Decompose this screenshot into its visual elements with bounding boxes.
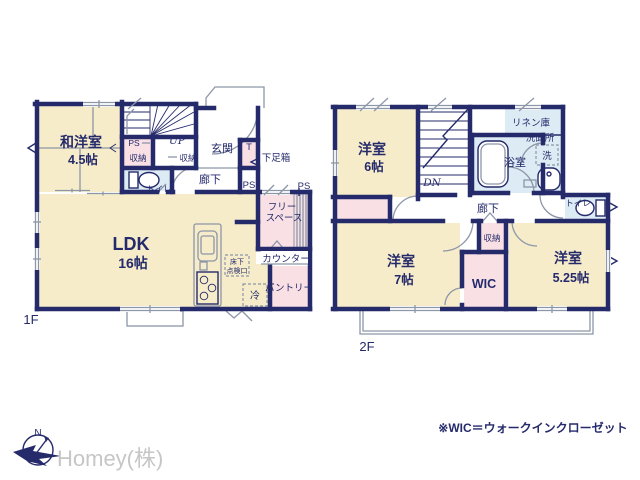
bedroom525-label: 洋室 [554,250,582,266]
floor-plan-page: 和洋室 4.5帖 PS 収納 収納 UP 玄関 T 下足箱 PS 廊下 トイレ … [0,0,640,480]
ldk-label: LDK [113,234,150,254]
closet-label-a: 収納 [129,153,146,163]
terrace-step [127,311,183,326]
bedroom7-size: 7帖 [394,272,414,287]
hallway-label-1f: 廊下 [199,172,221,186]
bedroom6-closet [335,199,388,219]
fridge-label: 冷 [250,289,260,302]
stairs-2f [420,108,470,184]
window [356,98,390,111]
stairs-up-arrow [127,109,134,134]
toilet2f-door-arc [540,195,563,218]
stairs-1f [122,104,194,136]
window [390,305,440,313]
t-label: T [246,142,252,153]
window [515,98,541,111]
company-logo-text: Homey(株) [57,446,163,471]
ps-label-b: PS [243,180,256,191]
compass-north-label: N [34,428,41,439]
ps-label-c: PS [298,181,311,192]
window [33,212,41,233]
washer-label: 洗 [542,150,552,162]
compass: N [13,428,61,466]
ldk-size: 16帖 [118,255,148,271]
linen-label: リネン庫 [512,117,551,129]
floor1-label: 1F [23,312,38,327]
closet-label-b: 収納 [179,153,196,163]
washitsu-size: 4.5帖 [68,152,98,167]
window [33,248,41,270]
bedroom6-label: 洋室 [358,141,386,157]
toilet-label-2f: トイレ [565,198,591,208]
wic-footnote: ※WIC＝ウォークインクローゼット [438,420,627,435]
counter-label: カウンター [262,254,310,265]
shoe-box-label: 下足箱 [262,152,291,164]
window [605,250,611,272]
compass-bird-icon [13,445,61,466]
bedroom7-label: 洋室 [387,253,415,269]
free-space-label-2: スペース [266,213,303,224]
floor2-label: 2F [359,339,374,354]
entrance-label: 玄関 [211,141,233,155]
stairs-down-label: DN [422,177,441,189]
stairs-break-line [423,108,469,168]
floor-plan-svg: 和洋室 4.5帖 PS 収納 収納 UP 玄関 T 下足箱 PS 廊下 トイレ … [0,0,640,480]
floor-hatch-label-1: 床下 [230,257,244,266]
window [331,150,339,176]
ps-label-a: PS [128,138,140,148]
free-space-label-1: フリー [268,202,297,213]
bath-label: 浴室 [504,155,526,169]
wic-label: WIC [472,277,496,291]
window [120,305,180,313]
bedroom6-size: 6帖 [364,159,384,174]
toilet-label-1f: トイレ [146,184,172,194]
hallway-label-2f: 廊下 [477,201,499,215]
floor-hatch-label-2: 点検口 [227,266,248,275]
balcony [360,311,593,334]
window [537,305,567,313]
entrance-porch [206,87,264,108]
closet-label-2f: 収納 [483,233,500,243]
window [262,185,290,195]
window [83,100,115,108]
hall-ldk-door-arc [172,167,197,192]
window [428,98,452,111]
bedroom6-door-arc [393,196,418,221]
washitsu-label: 和洋室 [60,134,102,150]
stairs-up-label: UP [169,135,186,147]
pantry-label: パントリー [265,283,313,294]
bedroom525-size: 5.25帖 [553,270,590,285]
kitchen-vent-arrow [226,311,252,321]
washroom-label: 洗面所 [526,132,555,144]
